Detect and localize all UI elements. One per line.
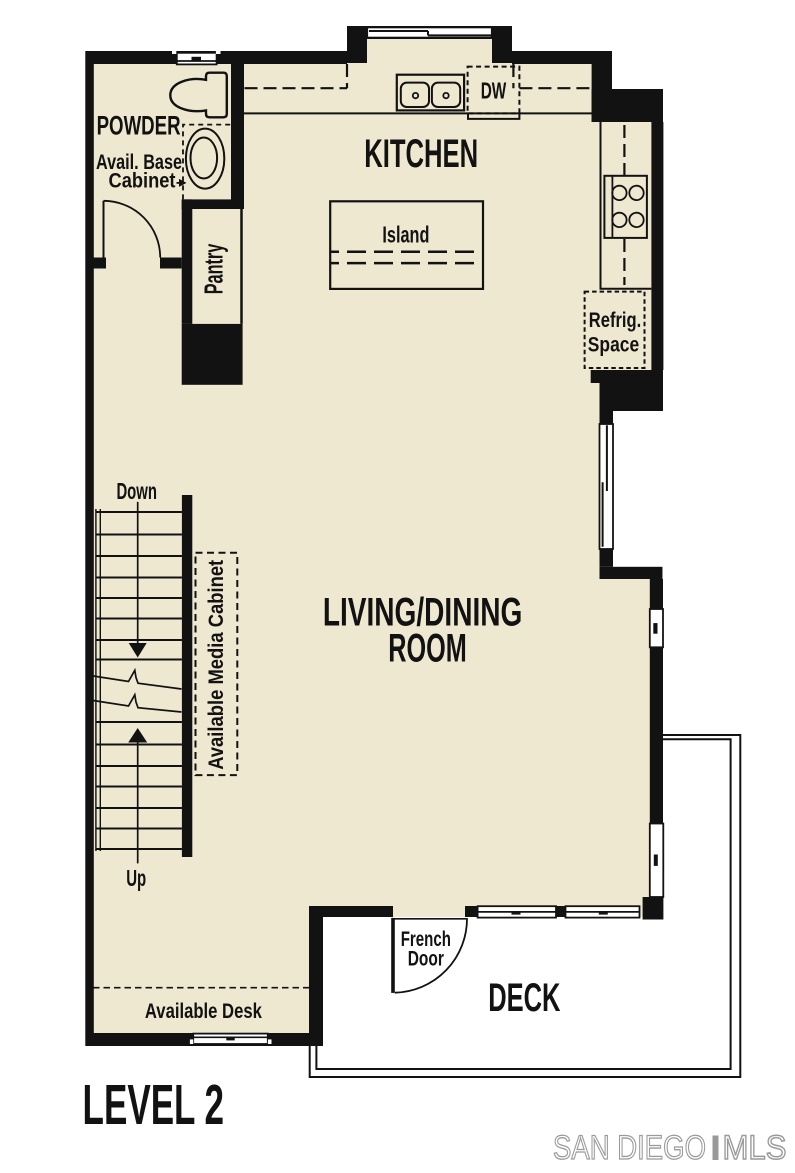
svg-text:Door: Door [408,946,445,970]
svg-text:Down: Down [116,478,157,504]
svg-text:Cabinet: Cabinet [109,170,176,193]
svg-text:DW: DW [481,77,507,103]
svg-text:Available Media Cabinet: Available Media Cabinet [204,560,228,770]
svg-text:Island: Island [382,222,429,248]
svg-text:ROOM: ROOM [388,627,467,671]
svg-text:Space: Space [588,333,639,357]
svg-text:Up: Up [126,865,146,891]
svg-text:SAN DIEGO: SAN DIEGO [553,1129,706,1167]
svg-text:LEVEL 2: LEVEL 2 [83,1073,225,1137]
svg-text:Refrig.: Refrig. [589,308,641,332]
svg-text:DECK: DECK [488,976,560,1020]
svg-text:POWDER: POWDER [97,111,181,141]
svg-text:KITCHEN: KITCHEN [364,132,478,176]
svg-text:Available Desk: Available Desk [145,999,262,1023]
svg-text:Pantry: Pantry [201,243,229,294]
svg-text:MLS: MLS [723,1129,787,1167]
